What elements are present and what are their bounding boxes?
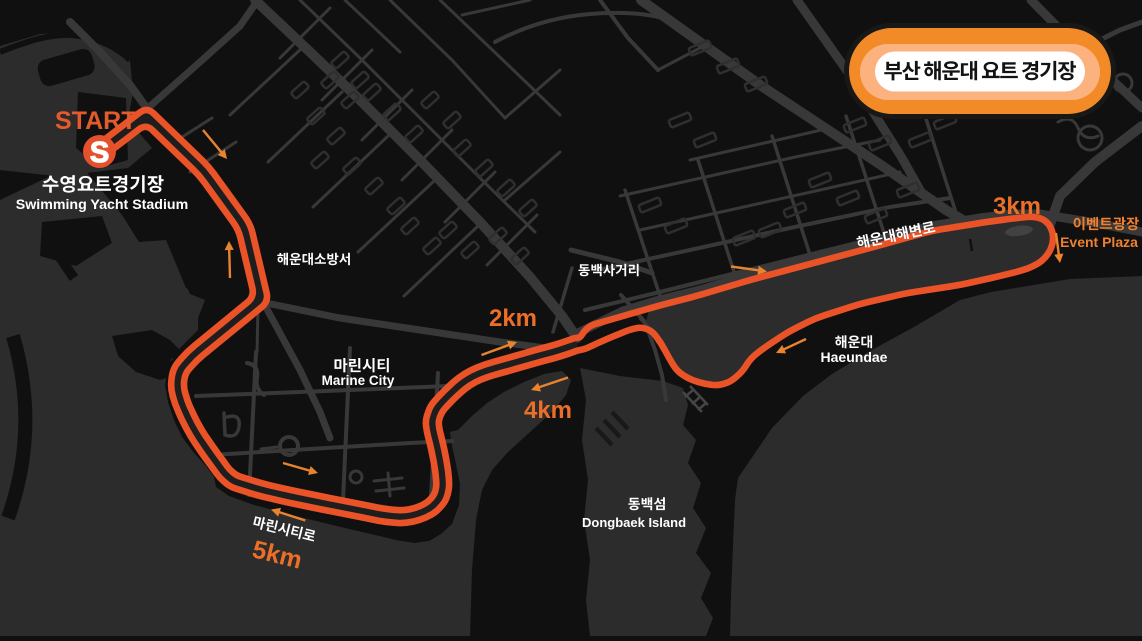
svg-text:3km: 3km — [993, 193, 1041, 220]
svg-text:2km: 2km — [489, 305, 537, 332]
svg-text:Dongbaek Island: Dongbaek Island — [582, 515, 686, 530]
svg-text:Haeundae: Haeundae — [821, 349, 888, 365]
svg-text:Marine City: Marine City — [322, 373, 395, 388]
svg-text:4km: 4km — [524, 397, 572, 424]
svg-text:Event Plaza: Event Plaza — [1060, 234, 1138, 250]
svg-text:START: START — [55, 107, 136, 135]
svg-text:S: S — [90, 137, 109, 169]
svg-text:Swimming Yacht Stadium: Swimming Yacht Stadium — [16, 197, 188, 213]
